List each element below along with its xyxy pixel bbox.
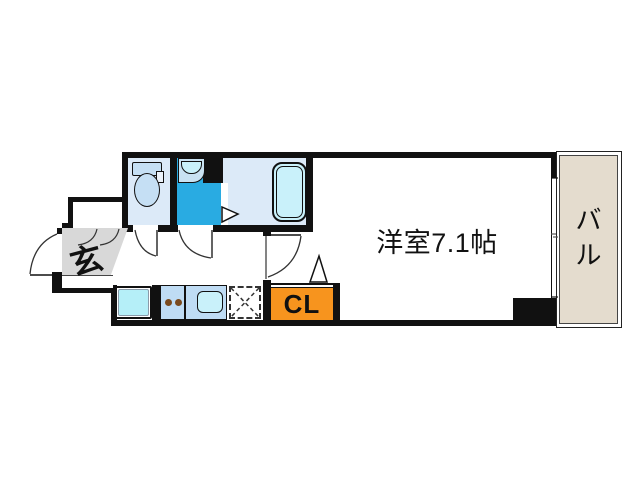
stove-burner-icon <box>165 299 172 306</box>
closet-label: CL <box>284 291 321 317</box>
balcony-label: バ ル <box>559 193 618 283</box>
balcony-label-char: バ <box>575 203 601 238</box>
main-room-door-arc <box>268 236 301 277</box>
pipe-space <box>203 158 223 183</box>
balcony-label-char: ル <box>575 238 601 273</box>
wall-toilet-divider <box>170 158 177 225</box>
wall-bottom <box>111 320 558 326</box>
wall-closet-right <box>333 283 340 320</box>
wall-entrance-hinge <box>52 272 62 287</box>
kitchen-sink <box>197 291 223 313</box>
washing-machine-pan-inner <box>118 289 149 316</box>
toilet-bowl <box>134 173 160 207</box>
wall-block-bottom-c <box>213 225 306 232</box>
wall-hall-room-top <box>263 226 271 236</box>
bathtub <box>272 162 307 222</box>
refrigerator-space <box>229 286 261 319</box>
floor-plan: 玄 CL 洋室7.1帖 バ ル <box>0 0 640 480</box>
main-room-label: 洋室7.1帖 <box>337 221 537 260</box>
wall-pan-divider <box>152 285 160 320</box>
washroom-door-arc <box>179 230 211 258</box>
wall-hall-room-bottom <box>263 280 271 320</box>
toilet-door-arc <box>135 230 156 256</box>
wall-shoebox-top <box>68 197 128 202</box>
stove-burner-icon <box>175 299 182 306</box>
pillar-bottom-right <box>513 298 558 326</box>
wall-entrance-connector <box>62 223 70 228</box>
wall-bath-right <box>306 152 313 232</box>
entrance-door-arc <box>30 234 57 274</box>
washing-machine-pan <box>115 286 152 319</box>
bathroom-door-gap <box>221 183 228 225</box>
closet: CL <box>271 287 333 320</box>
closet-fold-triangle-icon <box>310 256 327 282</box>
wall-block-left <box>122 152 128 232</box>
closet-door-line <box>271 283 333 285</box>
wall-block-bottom-b <box>158 225 178 232</box>
counter-divider <box>184 286 186 319</box>
bathtub-rim <box>276 166 303 218</box>
